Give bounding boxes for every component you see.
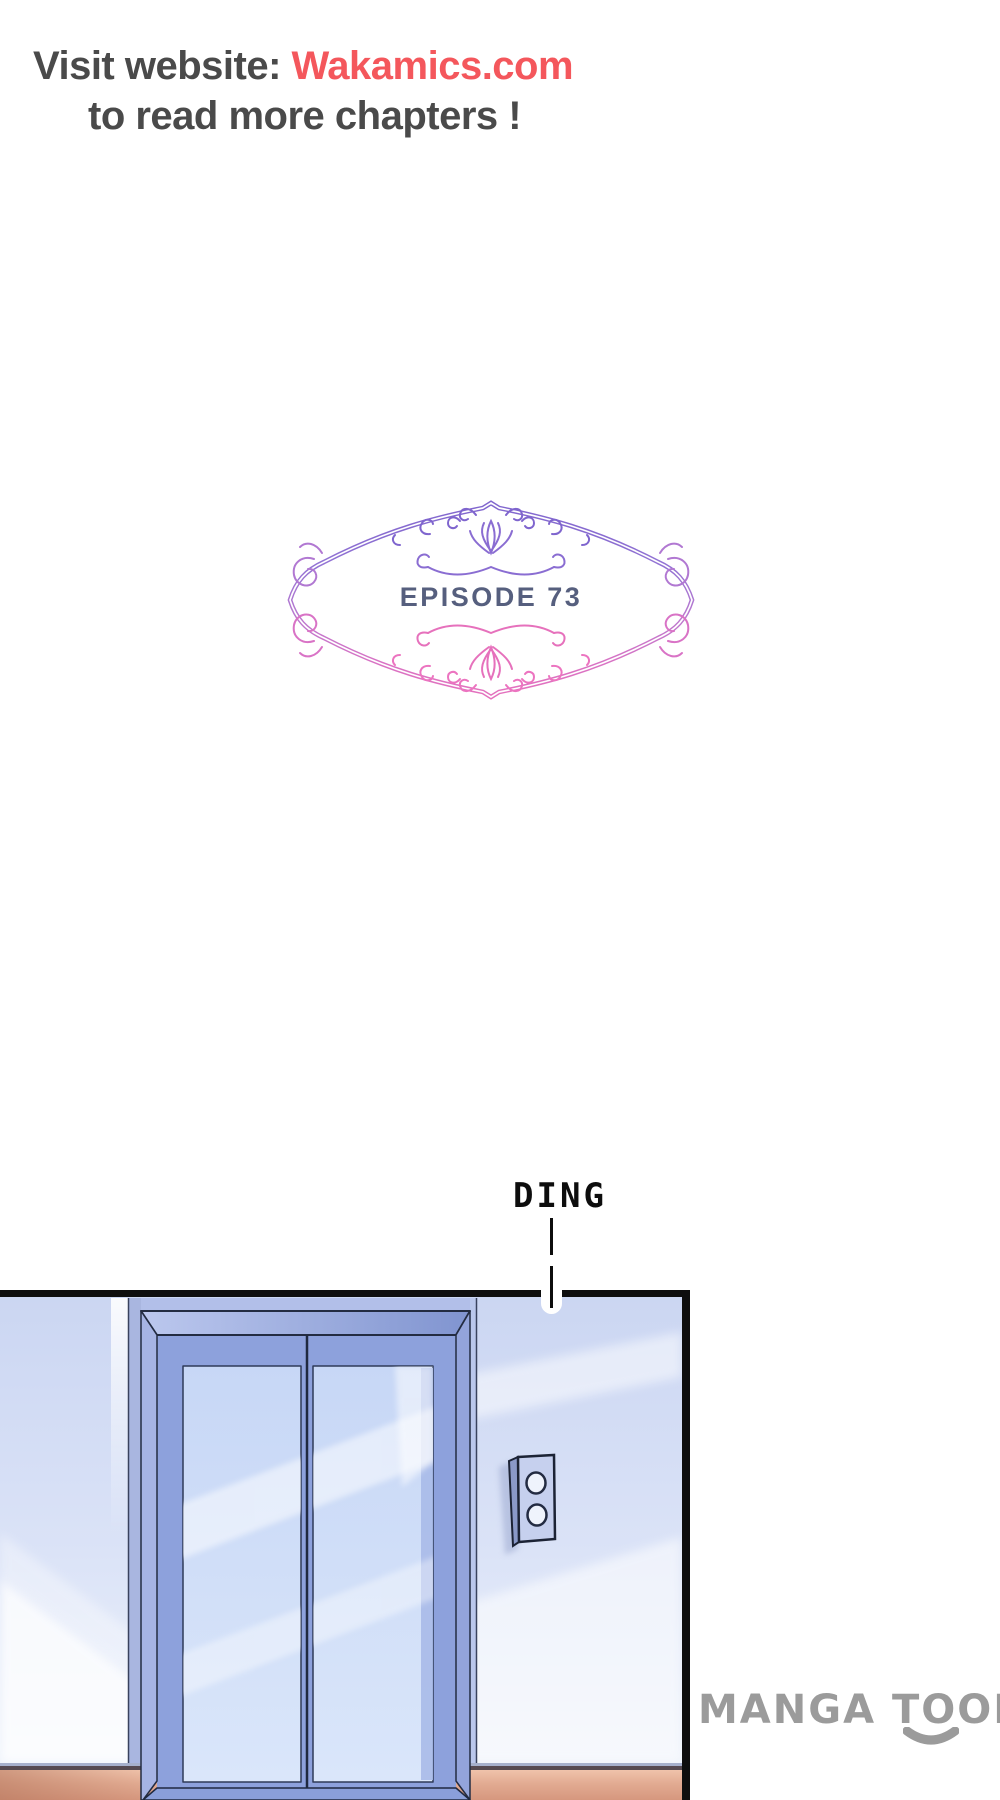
promo-text-line1: Visit website: Wakamics.com — [33, 44, 573, 89]
promo-prefix: Visit website: — [33, 44, 292, 88]
comic-panel — [0, 1290, 690, 1800]
ding-sfx-label: DING — [455, 1176, 665, 1216]
promo-text-line2: to read more chapters ! — [88, 94, 521, 139]
episode-badge: EPISODE 73 — [280, 487, 702, 713]
elevator-scene — [0, 1297, 682, 1800]
wakamics-link: Wakamics.com — [292, 44, 574, 88]
ding-pointer-line — [550, 1266, 553, 1308]
episode-label: EPISODE 73 — [280, 582, 702, 613]
elevator-call-button-panel — [499, 1455, 555, 1555]
ding-pointer-line — [550, 1218, 553, 1255]
call-button-up — [527, 1473, 546, 1494]
smile-icon — [903, 1727, 959, 1751]
call-button-down — [528, 1505, 547, 1526]
elevator — [128, 1298, 477, 1800]
